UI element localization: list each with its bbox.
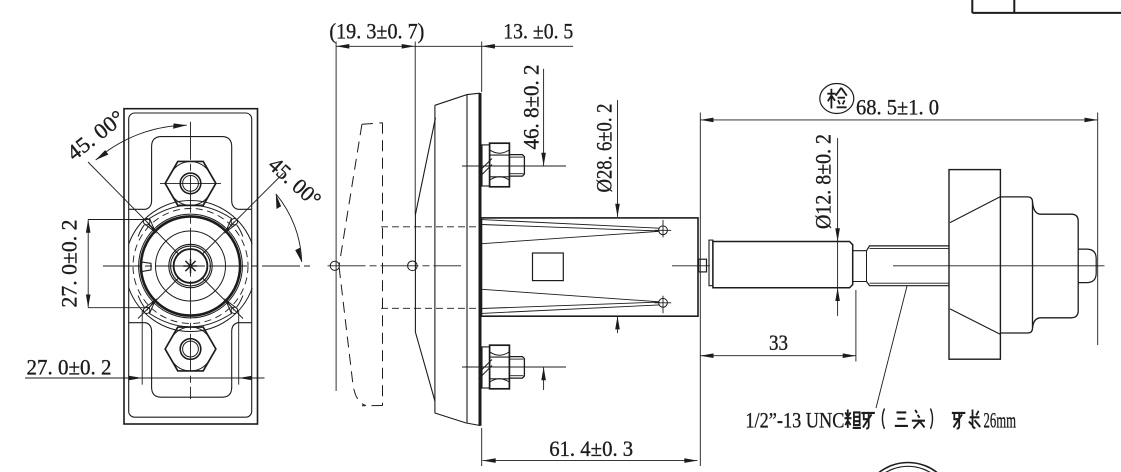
- svg-text:45. 00°: 45. 00°: [62, 105, 129, 165]
- svg-text:27. 0±0. 2: 27. 0±0. 2: [57, 220, 82, 308]
- svg-text:26mm: 26mm: [984, 408, 1017, 433]
- svg-text:13. ±0. 5: 13. ±0. 5: [503, 19, 573, 44]
- svg-text:(19. 3±0. 7): (19. 3±0. 7): [329, 19, 424, 44]
- svg-text:61. 4±0. 3: 61. 4±0. 3: [549, 436, 633, 461]
- svg-text:46. 8±0. 2: 46. 8±0. 2: [519, 65, 544, 150]
- svg-text:68. 5±1. 0: 68. 5±1. 0: [856, 95, 939, 120]
- svg-text:27. 0±0. 2: 27. 0±0. 2: [27, 355, 112, 380]
- svg-text:33: 33: [769, 330, 788, 355]
- svg-text:1/2”-13 UNC: 1/2”-13 UNC: [745, 408, 844, 433]
- svg-text:Ø12. 8±0. 2: Ø12. 8±0. 2: [811, 134, 836, 229]
- svg-text:Ø28. 6±0. 2: Ø28. 6±0. 2: [592, 104, 617, 193]
- svg-text:45. 00°: 45. 00°: [264, 152, 327, 212]
